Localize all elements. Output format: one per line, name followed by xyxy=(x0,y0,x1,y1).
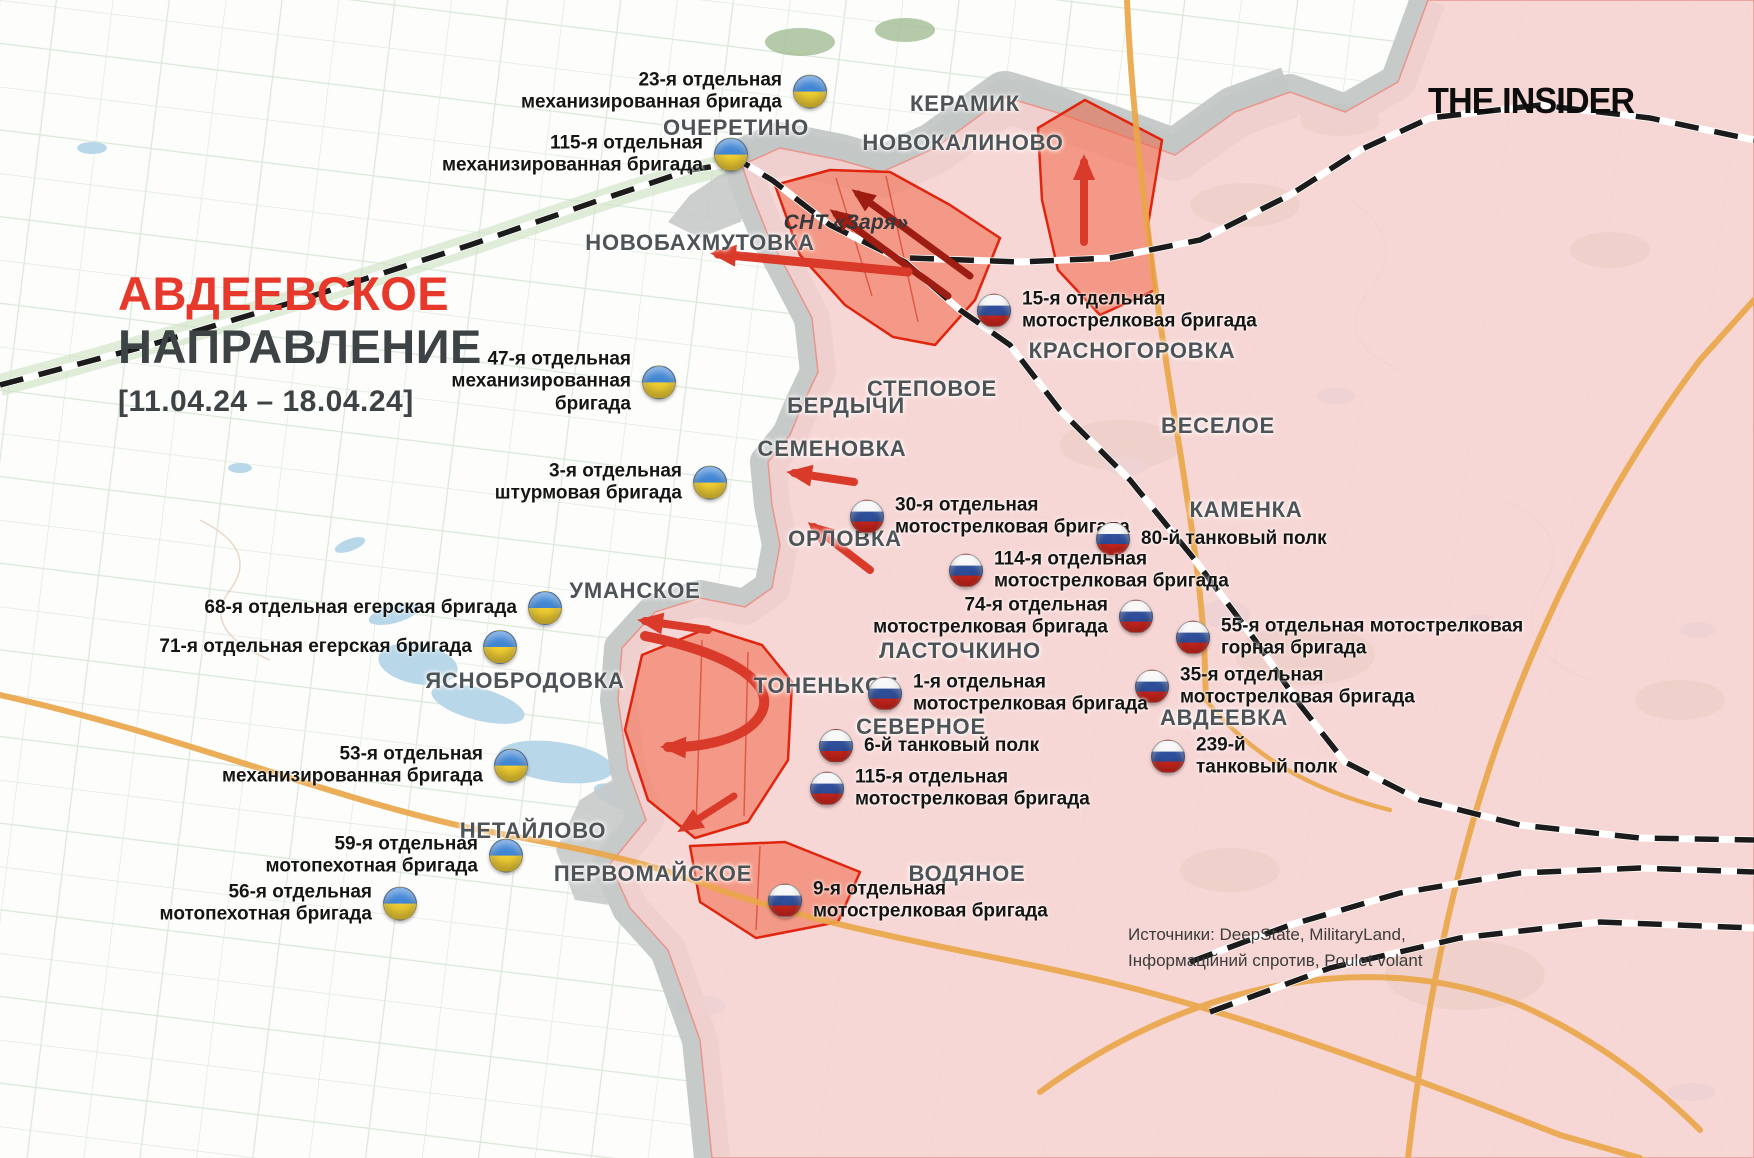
unit-ua-68-jaeger: 68-я отдельная егерская бригада xyxy=(204,591,562,625)
town-lastochkyne: ЛАСТОЧКИНО xyxy=(879,638,1041,664)
unit-label: 56-я отдельная мотопехотная бригада xyxy=(160,882,372,927)
town-kamenka: КАМЕНКА xyxy=(1189,497,1302,523)
russia-flag-icon xyxy=(850,500,884,534)
unit-label: 80-й танковый полк xyxy=(1141,528,1327,550)
unit-ru-114-mot: 114-я отдельная мотострелковая бригада xyxy=(949,549,1229,594)
ukraine-flag-icon xyxy=(489,839,523,873)
unit-label: 71-я отдельная егерская бригада xyxy=(159,636,472,658)
town-vesele: ВЕСЕЛОЕ xyxy=(1161,413,1275,439)
ukraine-flag-icon xyxy=(383,887,417,921)
town-semenivka: СЕМЕНОВКА xyxy=(758,436,907,462)
unit-ua-53-mech: 53-я отдельная механизированная бригада xyxy=(222,744,528,789)
unit-label: 115-я отдельная механизированная бригада xyxy=(442,133,703,178)
town-novobakhmutovka: НОВОБАХМУТОВКА xyxy=(585,230,814,256)
ukraine-flag-icon xyxy=(693,466,727,500)
russia-flag-icon xyxy=(868,677,902,711)
town-keramik: КЕРАМИК xyxy=(910,91,1020,117)
unit-ua-59-motinf: 59-я отдельная мотопехотная бригада xyxy=(266,834,523,879)
unit-ua-71-jaeger: 71-я отдельная егерская бригада xyxy=(159,630,517,664)
unit-label: 6-й танковый полк xyxy=(864,735,1039,757)
unit-ru-115-mot: 115-я отдельная мотострелковая бригада xyxy=(810,767,1090,812)
unit-label: 23-я отдельная механизированная бригада xyxy=(521,70,782,115)
unit-label: 68-я отдельная егерская бригада xyxy=(204,597,517,619)
town-pervomaiske: ПЕРВОМАЙСКОЕ xyxy=(554,861,752,887)
russia-flag-icon xyxy=(1151,740,1185,774)
unit-ru-15-mot: 15-я отдельная мотострелковая бригада xyxy=(977,289,1257,334)
ukraine-flag-icon xyxy=(714,138,748,172)
unit-label: 3-я отдельная штурмовая бригада xyxy=(495,461,682,506)
russia-flag-icon xyxy=(949,554,983,588)
basemap xyxy=(0,0,1754,1158)
ukraine-flag-icon xyxy=(528,591,562,625)
unit-ua-115-mech: 115-я отдельная механизированная бригада xyxy=(442,133,748,178)
map-title: АВДЕЕВСКОЕ НАПРАВЛЕНИЕ [11.04.24 – 18.04… xyxy=(118,268,482,419)
unit-label: 47-я отдельная механизированная бригада xyxy=(451,348,631,415)
town-krasnohorivka: КРАСНОГОРОВКА xyxy=(1029,338,1236,364)
unit-ru-30-mot: 30-я отдельная мотострелковая бригада xyxy=(850,495,1130,540)
title-period: [11.04.24 – 18.04.24] xyxy=(118,385,482,419)
unit-label: 30-я отдельная мотострелковая бригада xyxy=(895,495,1130,540)
unit-ua-3-assault: 3-я отдельная штурмовая бригада xyxy=(495,461,727,506)
title-direction-dark: НАПРАВЛЕНИЕ xyxy=(118,321,482,374)
sources-note: Источники: DeepState, MilitaryLand, Інфо… xyxy=(1128,922,1423,975)
unit-label: 53-я отдельная механизированная бригада xyxy=(222,744,483,789)
unit-ua-47-mech: 47-я отдельная механизированная бригада xyxy=(451,348,676,415)
ukraine-flag-icon xyxy=(483,630,517,664)
unit-ru-9-mot: 9-я отдельная мотострелковая бригада xyxy=(768,879,1048,924)
ukraine-flag-icon xyxy=(642,365,676,399)
unit-label: 55-я отдельная мотострелковая горная бри… xyxy=(1221,616,1523,661)
ukraine-flag-icon xyxy=(494,749,528,783)
unit-label: 114-я отдельная мотострелковая бригада xyxy=(994,549,1229,594)
russia-flag-icon xyxy=(768,884,802,918)
unit-ru-6-tank: 6-й танковый полк xyxy=(819,729,1039,763)
brand-logo: THE INSIDER xyxy=(1428,80,1634,122)
russia-flag-icon xyxy=(977,294,1011,328)
unit-ru-35-mot: 35-я отдельная мотострелковая бригада xyxy=(1135,665,1415,710)
russia-flag-icon xyxy=(819,729,853,763)
unit-ua-23-mech: 23-я отдельная механизированная бригада xyxy=(521,70,827,115)
unit-label: 15-я отдельная мотострелковая бригада xyxy=(1022,289,1257,334)
unit-label: 35-я отдельная мотострелковая бригада xyxy=(1180,665,1415,710)
title-direction-red: АВДЕЕВСКОЕ xyxy=(118,268,482,321)
unit-ru-74-mot: 74-я отдельная мотострелковая бригада xyxy=(873,595,1153,640)
unit-label: 74-я отдельная мотострелковая бригада xyxy=(873,595,1108,640)
unit-label: 59-я отдельная мотопехотная бригада xyxy=(266,834,478,879)
russia-flag-icon xyxy=(810,772,844,806)
town-berdychi: БЕРДЫЧИ xyxy=(787,393,905,419)
unit-label: 9-я отдельная мотострелковая бригада xyxy=(813,879,1048,924)
unit-ua-56-motinf: 56-я отдельная мотопехотная бригада xyxy=(160,882,417,927)
town-yasnobrodivka: ЯСНОБРОДОВКА xyxy=(425,668,624,694)
unit-label: 115-я отдельная мотострелковая бригада xyxy=(855,767,1090,812)
unit-ru-55-mountain: 55-я отдельная мотострелковая горная бри… xyxy=(1176,616,1523,661)
ukraine-flag-icon xyxy=(793,75,827,109)
map-root: АВДЕЕВСКОЕ НАПРАВЛЕНИЕ [11.04.24 – 18.04… xyxy=(0,0,1754,1158)
unit-label: 1-я отдельная мотострелковая бригада xyxy=(913,672,1148,717)
russia-flag-icon xyxy=(1176,621,1210,655)
russia-flag-icon xyxy=(1119,600,1153,634)
unit-ru-239-tank: 239-й танковый полк xyxy=(1151,735,1337,780)
town-snt-zarya: СНТ «Заря» xyxy=(784,211,909,235)
town-novokalynove: НОВОКАЛИНОВО xyxy=(862,130,1063,156)
unit-label: 239-й танковый полк xyxy=(1196,735,1337,780)
town-umanske: УМАНСКОЕ xyxy=(569,578,700,604)
unit-ru-1-mot: 1-я отдельная мотострелковая бригада xyxy=(868,672,1148,717)
